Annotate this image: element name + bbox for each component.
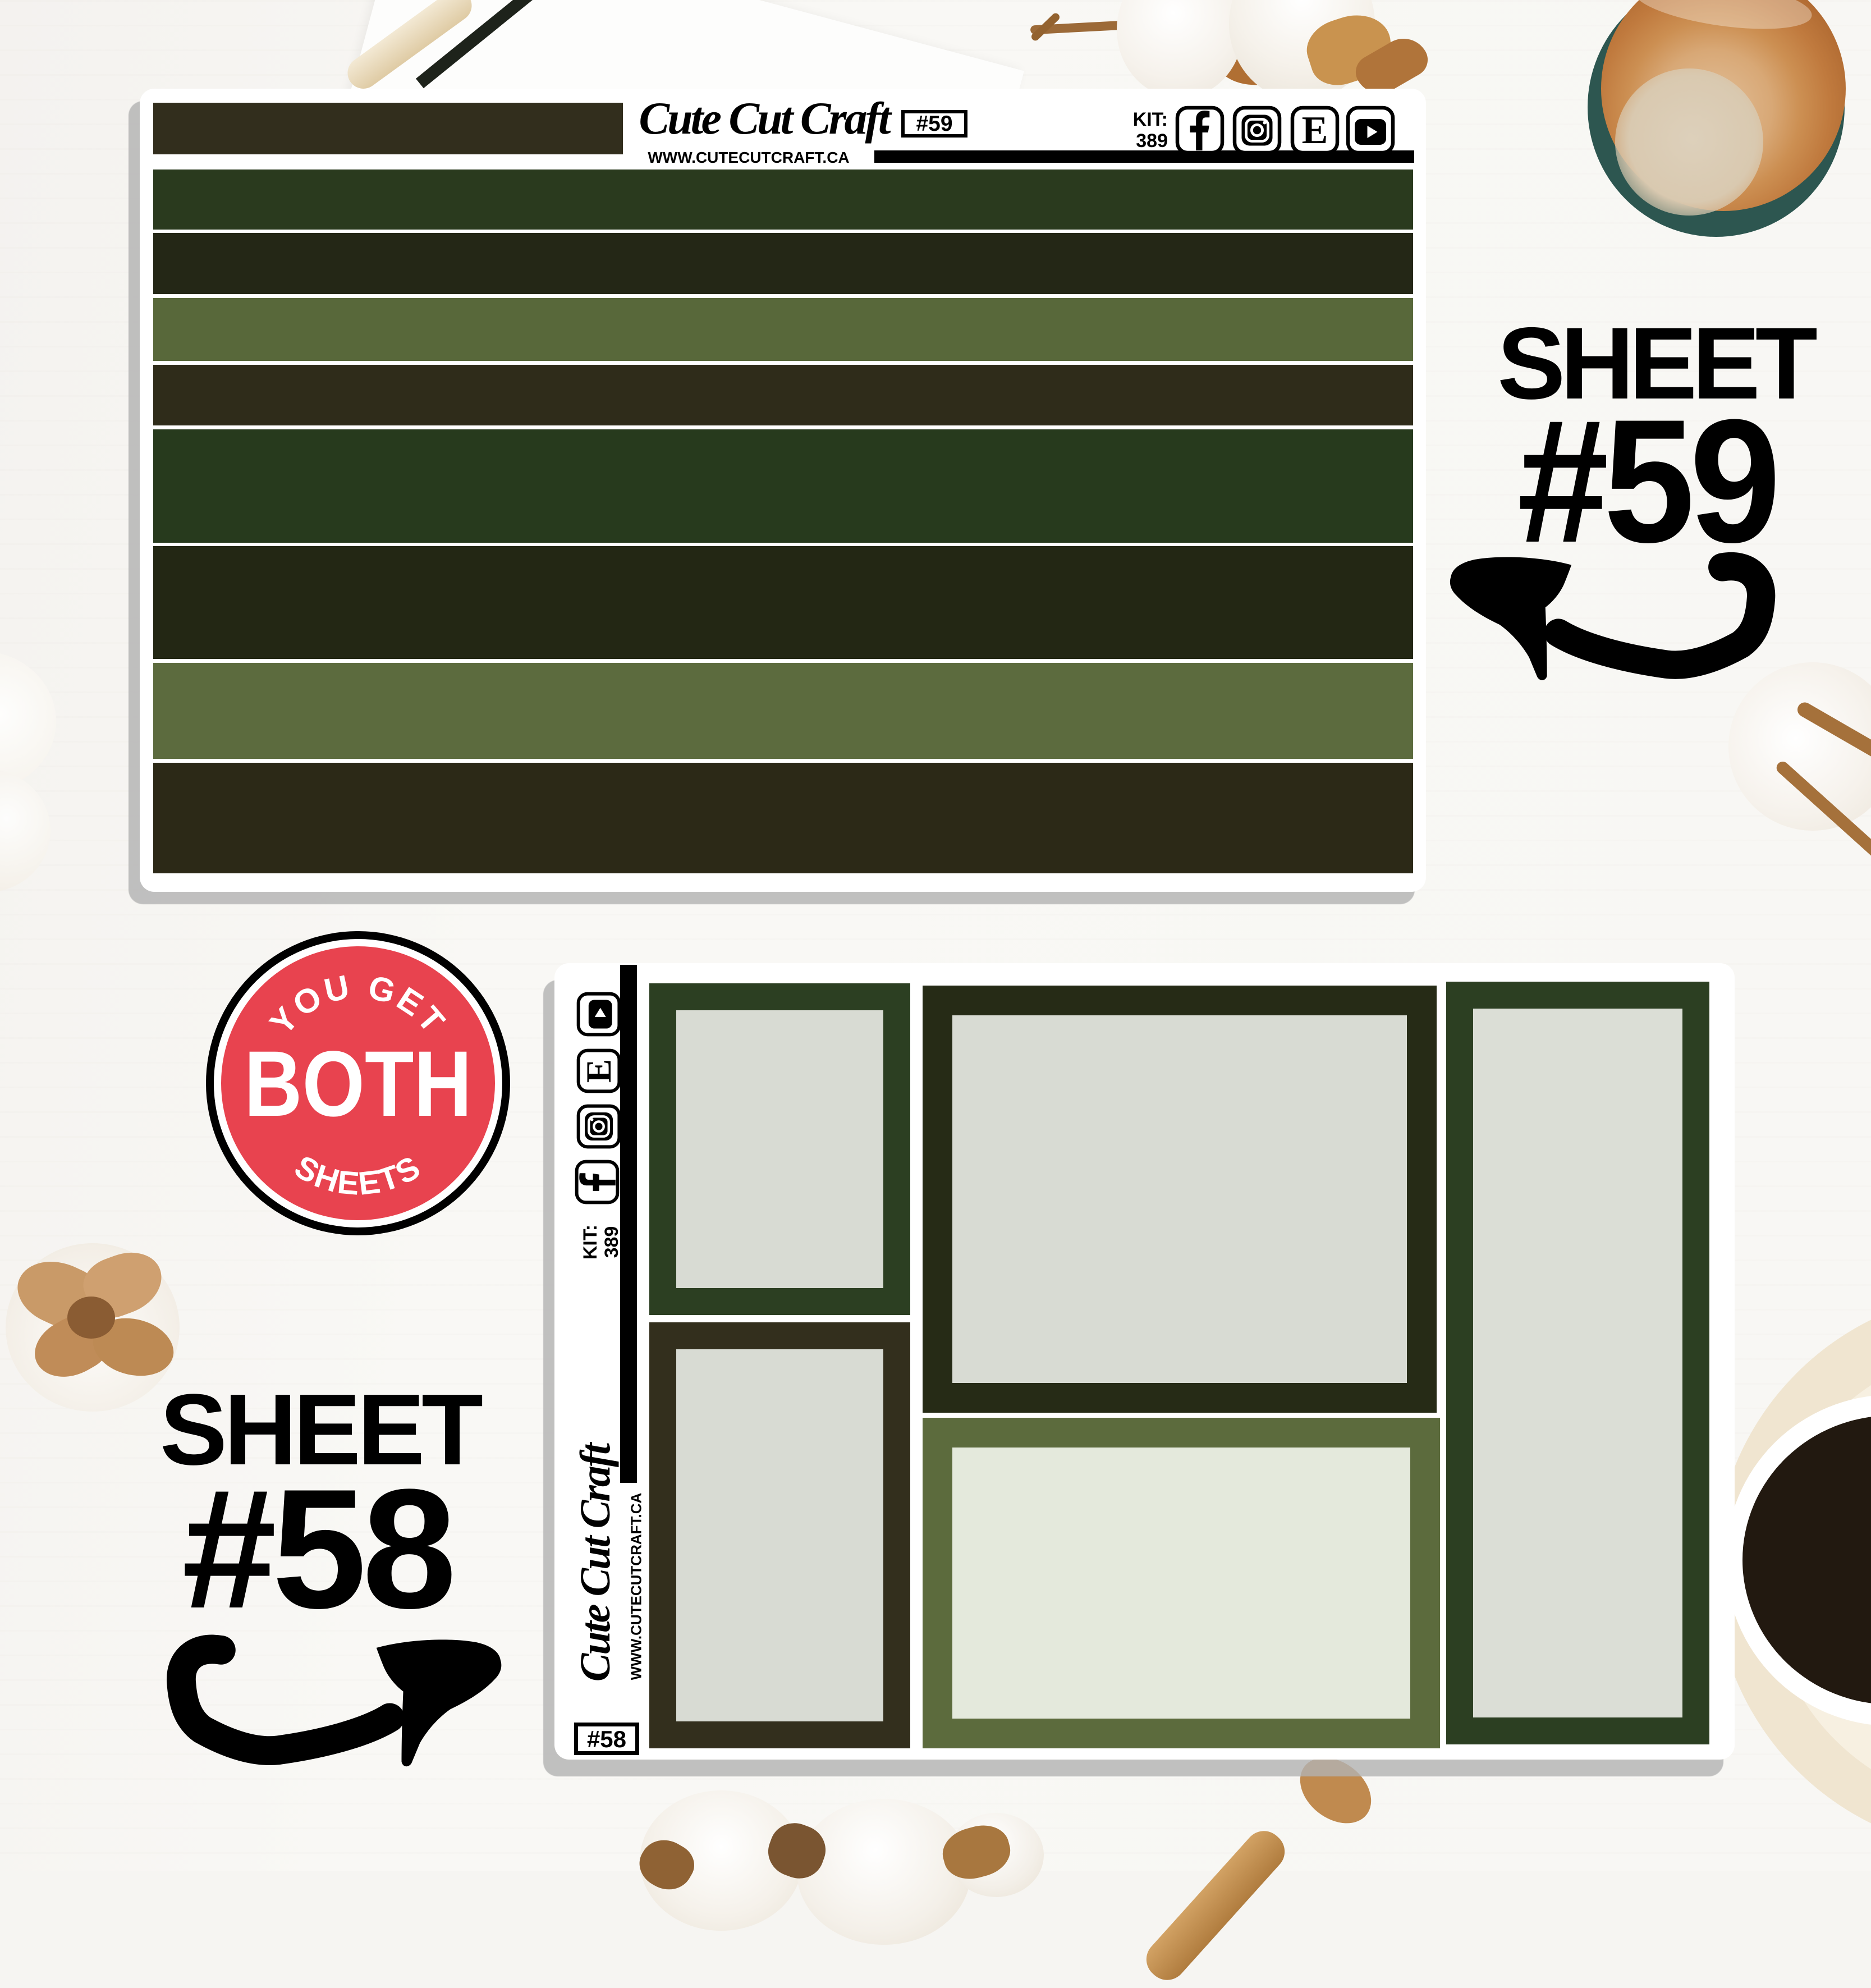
svg-text:E: E — [579, 1059, 618, 1083]
svg-text:BOTH: BOTH — [244, 1032, 472, 1136]
svg-text:E: E — [1302, 109, 1328, 152]
